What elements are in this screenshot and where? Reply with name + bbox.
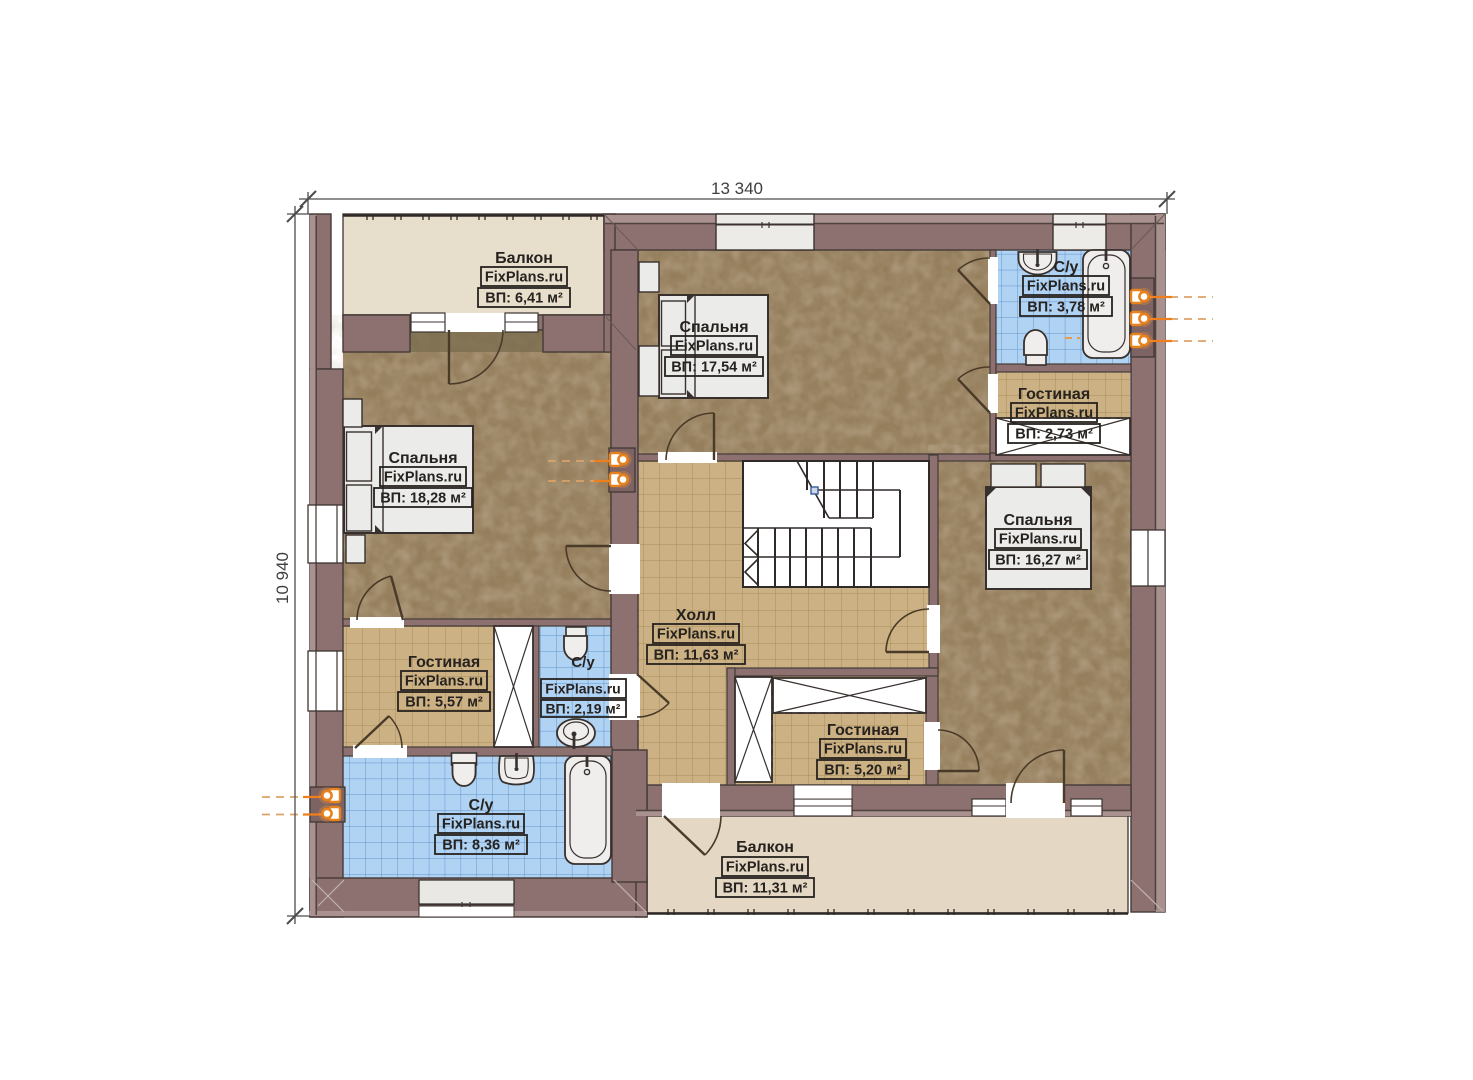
svg-text:FixPlans.ru: FixPlans.ru [726, 860, 804, 876]
svg-text:FixPlans.ru: FixPlans.ru [1027, 279, 1105, 295]
svg-text:Спальня: Спальня [1003, 512, 1072, 529]
svg-text:ВП: 5,57 м²: ВП: 5,57 м² [405, 695, 483, 711]
svg-text:Балкон: Балкон [736, 839, 794, 856]
svg-text:Гостиная: Гостиная [408, 654, 480, 671]
svg-text:С/у: С/у [571, 654, 595, 671]
svg-text:С/у: С/у [469, 797, 494, 814]
svg-text:ВП: 2,73 м²: ВП: 2,73 м² [1015, 427, 1093, 443]
svg-text:10 940: 10 940 [273, 552, 292, 604]
svg-text:FixPlans.ru: FixPlans.ru [384, 470, 462, 486]
svg-text:ВП: 2,19 м²: ВП: 2,19 м² [546, 701, 621, 717]
svg-text:FixPlans.ru: FixPlans.ru [545, 681, 620, 697]
svg-text:ВП: 16,27 м²: ВП: 16,27 м² [995, 553, 1081, 569]
svg-text:ВП: 8,36 м²: ВП: 8,36 м² [442, 838, 520, 854]
svg-text:FixPlans.ru: FixPlans.ru [657, 627, 735, 643]
svg-text:ВП: 5,20 м²: ВП: 5,20 м² [824, 763, 902, 779]
svg-text:Балкон: Балкон [495, 250, 553, 267]
svg-text:FixPlans.ru: FixPlans.ru [485, 270, 563, 286]
svg-text:FixPlans.ru: FixPlans.ru [824, 742, 902, 758]
svg-text:Спальня: Спальня [388, 450, 457, 467]
svg-text:ВП: 3,78 м²: ВП: 3,78 м² [1027, 300, 1105, 316]
svg-text:Гостиная: Гостиная [1018, 386, 1090, 403]
svg-text:FixPlans.ru: FixPlans.ru [442, 817, 520, 833]
svg-text:FixPlans.ru: FixPlans.ru [405, 674, 483, 690]
svg-text:ВП: 17,54 м²: ВП: 17,54 м² [671, 360, 757, 376]
svg-text:FixPlans.ru: FixPlans.ru [675, 339, 753, 355]
svg-text:Холл: Холл [676, 607, 716, 624]
svg-text:Гостиная: Гостиная [827, 722, 899, 739]
svg-text:С/у: С/у [1054, 259, 1079, 276]
svg-text:ВП: 18,28 м²: ВП: 18,28 м² [380, 491, 466, 507]
svg-text:FixPlans.ru: FixPlans.ru [1015, 406, 1093, 422]
svg-text:ВП: 11,31 м²: ВП: 11,31 м² [723, 881, 808, 897]
svg-text:ВП: 11,63 м²: ВП: 11,63 м² [654, 648, 739, 664]
svg-text:FixPlans.ru: FixPlans.ru [999, 532, 1077, 548]
svg-text:13 340: 13 340 [711, 179, 763, 198]
svg-text:ВП: 6,41 м²: ВП: 6,41 м² [485, 291, 563, 307]
svg-text:Спальня: Спальня [679, 319, 748, 336]
